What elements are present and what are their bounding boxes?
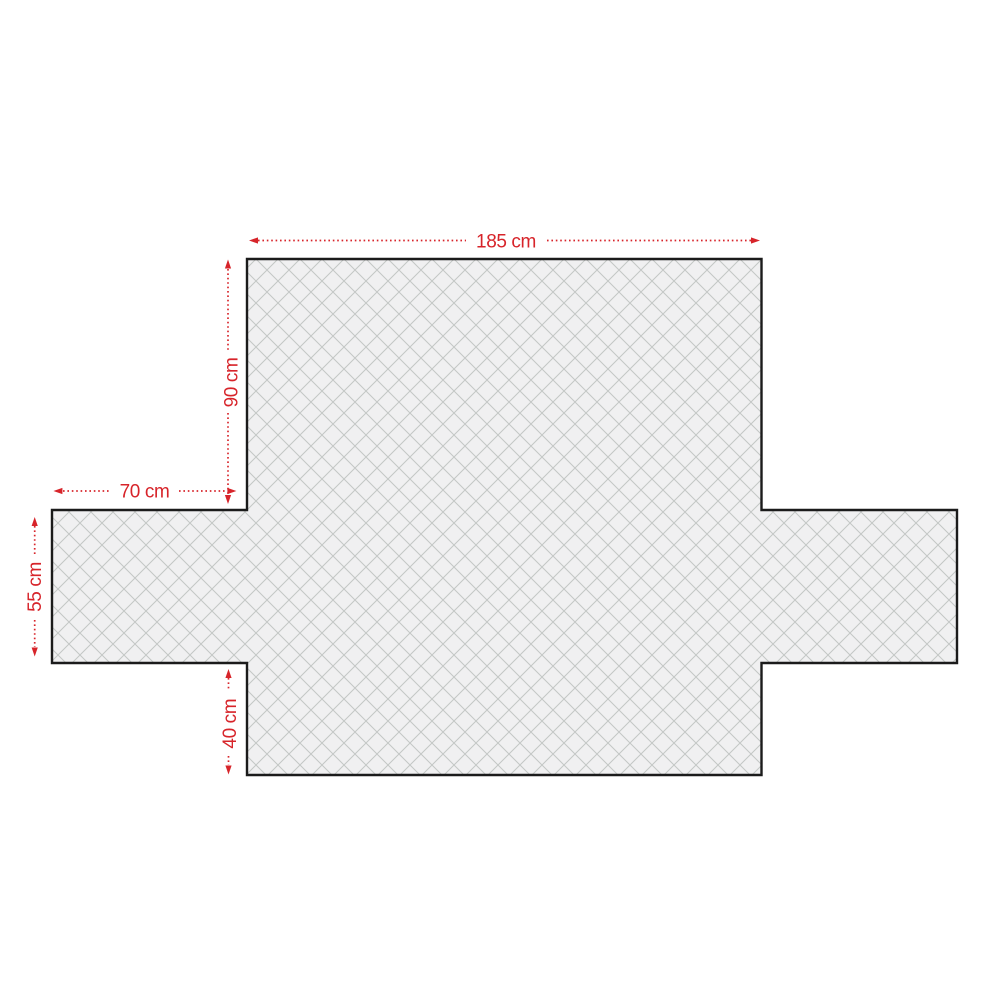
svg-text:90 cm: 90 cm [222, 358, 243, 408]
svg-text:70 cm: 70 cm [120, 482, 170, 503]
svg-text:40 cm: 40 cm [220, 699, 241, 749]
svg-text:185 cm: 185 cm [476, 232, 536, 253]
svg-text:55 cm: 55 cm [25, 562, 46, 612]
